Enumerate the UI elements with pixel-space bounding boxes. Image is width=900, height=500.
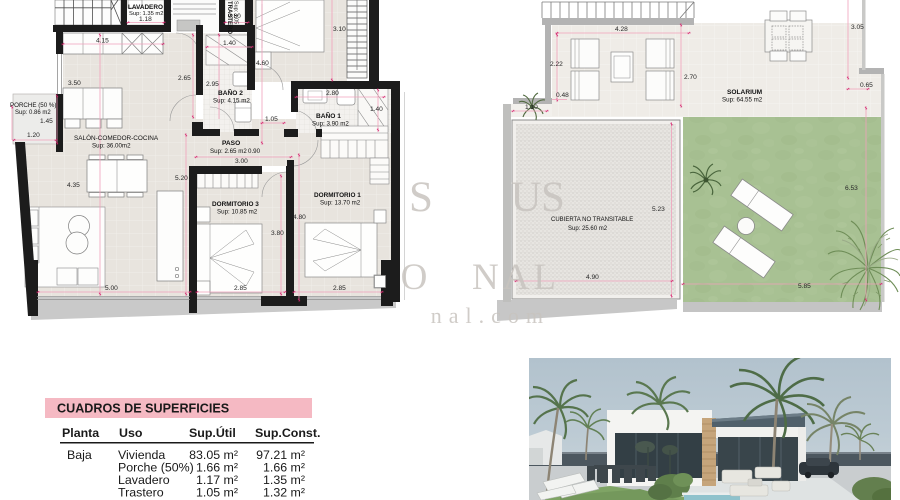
svg-text:3.05: 3.05 <box>851 24 864 31</box>
svg-text:4.15: 4.15 <box>96 38 109 45</box>
svg-text:2.70: 2.70 <box>684 74 697 81</box>
svg-text:Trastero: Trastero <box>118 486 164 500</box>
svg-text:Sup.Útil: Sup.Útil <box>189 425 236 440</box>
svg-text:Sup: 4.15 m2: Sup: 4.15 m2 <box>213 98 250 105</box>
svg-text:Baja: Baja <box>67 448 92 462</box>
svg-text:Sup: 3.90 m2: Sup: 3.90 m2 <box>312 121 349 128</box>
svg-text:2.95: 2.95 <box>206 81 219 88</box>
svg-text:Sup: 25.60 m2: Sup: 25.60 m2 <box>568 226 608 232</box>
svg-text:4.28: 4.28 <box>615 26 628 33</box>
svg-text:SOLARIUM: SOLARIUM <box>727 89 763 96</box>
svg-text:TRASTERO: TRASTERO <box>226 1 232 34</box>
svg-text:O: O <box>401 257 428 298</box>
svg-text:2.85: 2.85 <box>234 285 247 292</box>
svg-text:3.80: 3.80 <box>271 230 284 237</box>
svg-text:U: U <box>510 174 541 221</box>
svg-text:1.10: 1.10 <box>525 104 538 111</box>
svg-text:Sup: 36.00m2: Sup: 36.00m2 <box>92 143 131 150</box>
svg-text:4.35: 4.35 <box>67 182 80 189</box>
svg-text:Sup: 0.86 m2: Sup: 0.86 m2 <box>15 110 51 116</box>
svg-text:5.00: 5.00 <box>105 285 118 292</box>
svg-text:DORMITORIO 3: DORMITORIO 3 <box>212 201 259 208</box>
svg-text:0.65: 0.65 <box>860 82 873 89</box>
svg-text:Sup: 13.70 m2: Sup: 13.70 m2 <box>320 200 361 207</box>
svg-text:5.20: 5.20 <box>175 175 188 182</box>
svg-text:1.05: 1.05 <box>265 116 278 123</box>
svg-text:1.05 m²: 1.05 m² <box>196 486 238 500</box>
svg-text:1.18: 1.18 <box>139 16 152 23</box>
svg-text:NAL: NAL <box>472 257 560 298</box>
svg-text:2.80: 2.80 <box>326 90 339 97</box>
svg-text:DORMITORIO 1: DORMITORIO 1 <box>314 192 361 199</box>
svg-text:nal.com: nal.com <box>431 303 550 328</box>
svg-text:5.23: 5.23 <box>652 206 665 213</box>
svg-text:SALÓN-COMEDOR-COCINA: SALÓN-COMEDOR-COCINA <box>74 133 159 142</box>
svg-text:1.20: 1.20 <box>27 132 40 139</box>
svg-text:Sup: 1.35 m2: Sup: 1.35 m2 <box>129 11 163 17</box>
svg-text:3.50: 3.50 <box>68 80 81 87</box>
svg-text:4.60: 4.60 <box>256 60 269 67</box>
svg-text:Sup: 1.05: Sup: 1.05 <box>233 1 239 24</box>
svg-text:BAÑO 2: BAÑO 2 <box>218 88 243 97</box>
svg-text:PASO: PASO <box>222 140 240 147</box>
svg-text:Sup.Const.: Sup.Const. <box>255 426 320 440</box>
svg-text:4.90: 4.90 <box>586 274 599 281</box>
svg-text:3.00: 3.00 <box>235 158 248 165</box>
svg-text:S: S <box>409 174 433 221</box>
svg-text:Uso: Uso <box>119 426 143 440</box>
svg-text:Planta: Planta <box>62 426 99 440</box>
svg-text:3.10: 3.10 <box>333 26 346 33</box>
svg-text:Sup: 2.65 m2: Sup: 2.65 m2 <box>210 148 247 155</box>
svg-text:0.48: 0.48 <box>556 92 569 99</box>
svg-text:Sup: 10.85 m2: Sup: 10.85 m2 <box>217 209 258 216</box>
svg-text:6.53: 6.53 <box>845 185 858 192</box>
svg-text:1.40: 1.40 <box>370 106 383 113</box>
svg-text:BAÑO 1: BAÑO 1 <box>316 111 341 120</box>
svg-text:2.65: 2.65 <box>178 75 191 82</box>
svg-text:1.40: 1.40 <box>223 40 236 47</box>
svg-text:CUADROS DE SUPERFICIES: CUADROS DE SUPERFICIES <box>57 402 229 416</box>
svg-text:LAVADERO: LAVADERO <box>128 4 163 11</box>
svg-text:1.32 m²: 1.32 m² <box>263 486 305 500</box>
svg-text:S: S <box>541 174 565 221</box>
svg-text:1.45: 1.45 <box>40 118 53 125</box>
svg-text:5.85: 5.85 <box>798 283 811 290</box>
svg-text:4.80: 4.80 <box>293 214 306 221</box>
svg-text:PORCHE (50 %): PORCHE (50 %) <box>10 102 56 109</box>
svg-text:2.85: 2.85 <box>333 285 346 292</box>
svg-text:Sup: 64.55 m2: Sup: 64.55 m2 <box>722 97 763 104</box>
svg-text:0.90: 0.90 <box>248 148 261 155</box>
svg-text:2.22: 2.22 <box>550 61 563 68</box>
